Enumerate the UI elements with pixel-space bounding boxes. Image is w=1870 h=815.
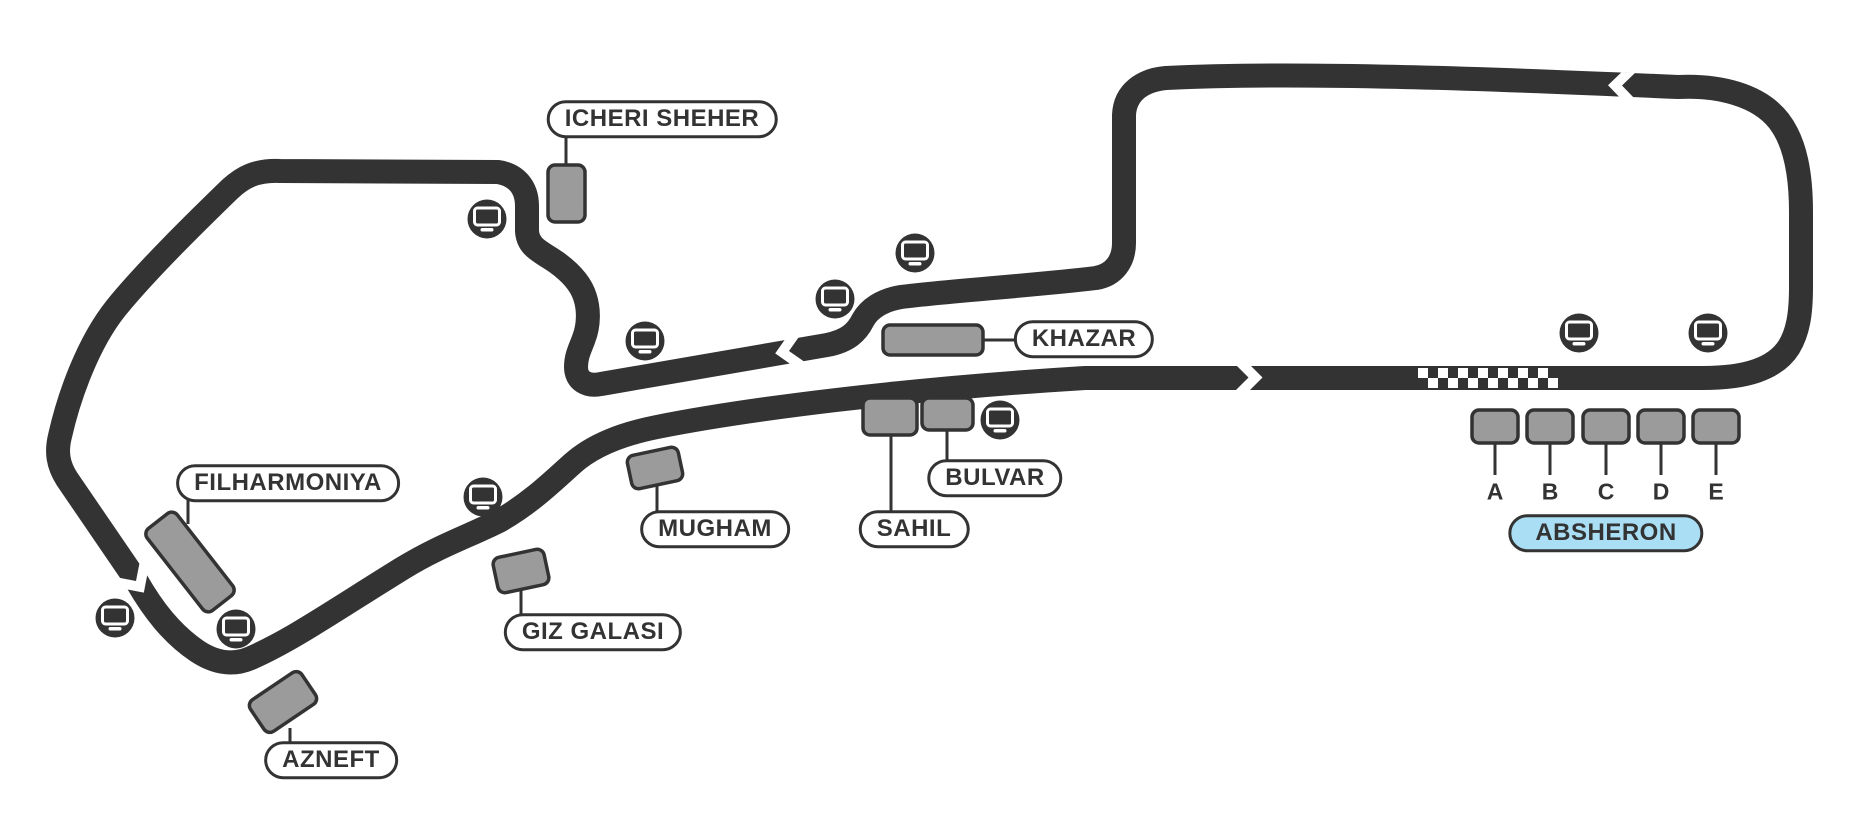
section-e-letter: E bbox=[1708, 479, 1723, 506]
screen-icon bbox=[981, 401, 1020, 440]
grandstand-bulvar[interactable] bbox=[922, 398, 973, 430]
screen-icon bbox=[626, 322, 665, 361]
grandstand-khazar[interactable] bbox=[883, 325, 983, 355]
grandstand-mugham[interactable] bbox=[626, 446, 684, 490]
circuit-svg bbox=[0, 0, 1870, 815]
screen-icon bbox=[468, 200, 507, 239]
label-icheri-sheher[interactable]: ICHERI SHEHER bbox=[547, 100, 778, 138]
screen-icon bbox=[1560, 314, 1599, 353]
section-a-letter: A bbox=[1487, 479, 1504, 506]
label-sahil[interactable]: SAHIL bbox=[859, 510, 970, 548]
section-b-block[interactable] bbox=[1527, 410, 1573, 443]
section-d-block[interactable] bbox=[1638, 410, 1684, 443]
label-bulvar[interactable]: BULVAR bbox=[927, 459, 1062, 497]
screen-icon bbox=[96, 599, 135, 638]
section-e-block[interactable] bbox=[1693, 410, 1739, 443]
grandstand-azneft[interactable] bbox=[247, 669, 320, 735]
screen-icon bbox=[896, 234, 935, 273]
label-azneft[interactable]: AZNEFT bbox=[264, 741, 398, 779]
screen-icon bbox=[217, 610, 256, 649]
screen-icon bbox=[464, 478, 503, 517]
label-filharmoniya[interactable]: FILHARMONIYA bbox=[176, 464, 400, 502]
section-c-block-selected[interactable] bbox=[1583, 410, 1629, 443]
section-a-block[interactable] bbox=[1472, 410, 1518, 443]
grandstand-sahil[interactable] bbox=[863, 398, 917, 435]
grandstand-icheri-sheher[interactable] bbox=[548, 165, 585, 222]
section-b-letter: B bbox=[1542, 479, 1559, 506]
label-khazar[interactable]: KHAZAR bbox=[1014, 320, 1154, 358]
circuit-map: ICHERI SHEHER KHAZAR FILHARMONIYA MUGHAM… bbox=[0, 0, 1870, 815]
screen-icon bbox=[1689, 314, 1728, 353]
section-d-letter: D bbox=[1653, 479, 1670, 506]
label-giz-galasi[interactable]: GIZ GALASI bbox=[504, 613, 682, 651]
screen-icon bbox=[816, 280, 855, 319]
section-c-letter: C bbox=[1598, 479, 1615, 506]
label-mugham[interactable]: MUGHAM bbox=[640, 510, 790, 548]
label-absheron[interactable]: ABSHERON bbox=[1508, 514, 1703, 552]
grandstand-giz-galasi[interactable] bbox=[492, 548, 550, 594]
finish-line-icon bbox=[1418, 368, 1558, 388]
